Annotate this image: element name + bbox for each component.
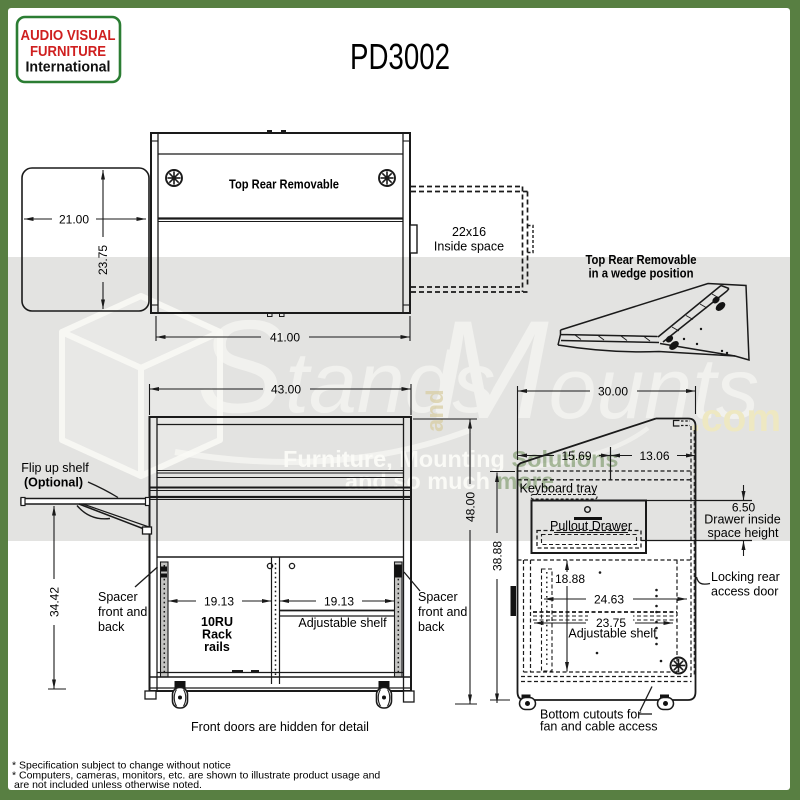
svg-text:21.00: 21.00	[59, 213, 89, 227]
svg-text:PD3002: PD3002	[350, 36, 450, 77]
svg-text:and: and	[422, 389, 449, 432]
svg-text:Adjustable shelf: Adjustable shelf	[568, 627, 657, 641]
svg-text:Top Rear Removable: Top Rear Removable	[586, 253, 697, 267]
svg-text:Front doors are hidden for det: Front doors are hidden for detail	[191, 720, 369, 734]
svg-text:Locking rear: Locking rear	[711, 570, 780, 584]
svg-text:are not included unless otherw: are not included unless otherwise noted.	[14, 779, 202, 791]
svg-text:Drawer inside: Drawer inside	[704, 513, 780, 527]
svg-text:AUDIO VISUAL: AUDIO VISUAL	[21, 28, 116, 44]
svg-text:in a wedge position: in a wedge position	[589, 267, 694, 281]
svg-text:.com: .com	[690, 397, 781, 440]
svg-text:Keyboard tray: Keyboard tray	[520, 482, 599, 496]
svg-text:Spacer: Spacer	[98, 590, 138, 604]
svg-text:Top Rear Removable: Top Rear Removable	[229, 178, 339, 192]
svg-text:34.42: 34.42	[48, 587, 62, 617]
svg-text:43.00: 43.00	[271, 383, 301, 397]
svg-text:(Optional): (Optional)	[24, 476, 83, 490]
svg-text:front and: front and	[98, 605, 147, 619]
svg-text:41.00: 41.00	[270, 331, 300, 345]
svg-text:rails: rails	[204, 640, 230, 654]
svg-text:22x16: 22x16	[452, 225, 486, 239]
svg-text:24.63: 24.63	[594, 593, 624, 607]
svg-text:Adjustable shelf: Adjustable shelf	[298, 616, 387, 630]
svg-text:FURNITURE: FURNITURE	[30, 44, 106, 60]
svg-text:18.88: 18.88	[555, 572, 585, 586]
svg-text:International: International	[26, 60, 111, 76]
svg-text:space height: space height	[708, 526, 779, 540]
svg-text:back: back	[418, 620, 445, 634]
svg-text:19.13: 19.13	[204, 595, 234, 609]
svg-text:48.00: 48.00	[464, 492, 478, 522]
svg-text:Flip up shelf: Flip up shelf	[21, 461, 89, 475]
svg-text:30.00: 30.00	[598, 385, 628, 399]
svg-text:access door: access door	[711, 585, 778, 599]
svg-text:38.88: 38.88	[491, 541, 505, 571]
svg-text:Inside space: Inside space	[434, 240, 504, 254]
svg-text:back: back	[98, 620, 125, 634]
svg-text:front and: front and	[418, 605, 467, 619]
svg-text:15.69: 15.69	[561, 449, 591, 463]
svg-text:Spacer: Spacer	[418, 590, 458, 604]
svg-text:13.06: 13.06	[639, 449, 669, 463]
svg-text:fan and cable access: fan and cable access	[540, 720, 657, 734]
svg-text:19.13: 19.13	[324, 595, 354, 609]
svg-text:23.75: 23.75	[96, 245, 110, 275]
